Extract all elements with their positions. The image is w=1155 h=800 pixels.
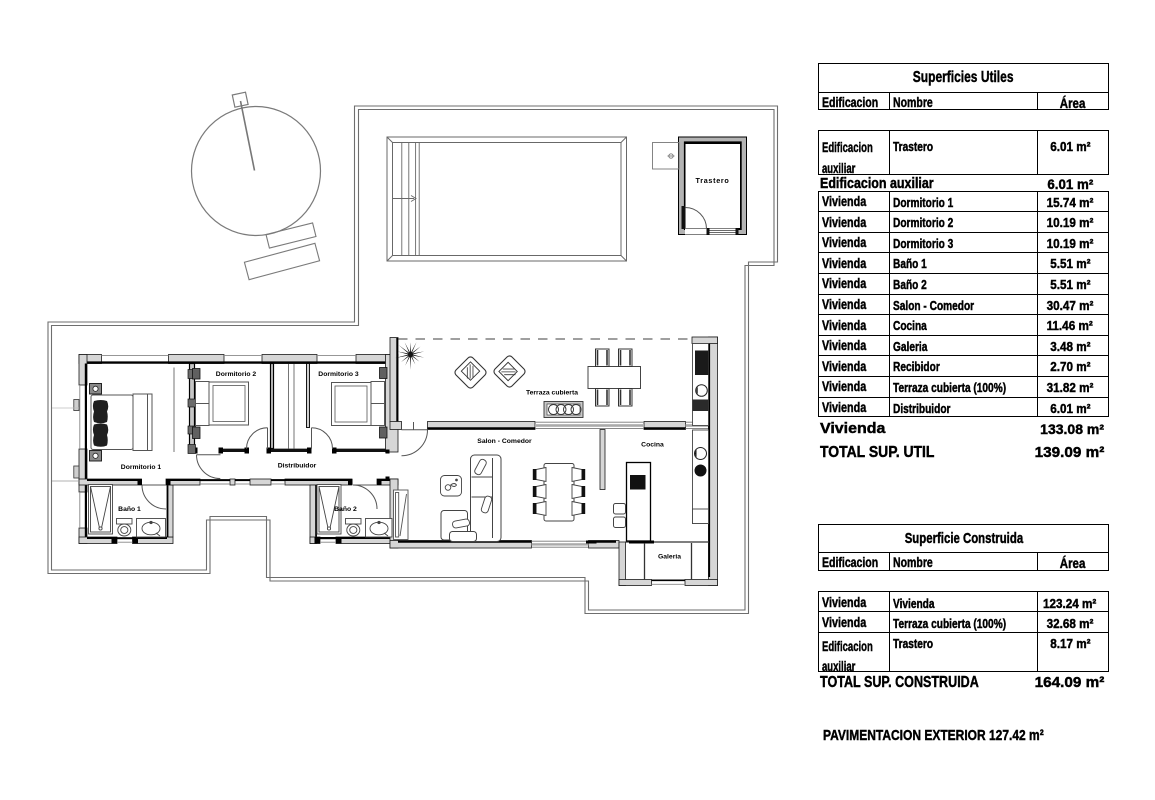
svg-text:Trastero: Trastero	[696, 176, 730, 185]
svg-text:Distribuidor: Distribuidor	[278, 463, 317, 470]
svg-text:Dormitorio 3: Dormitorio 3	[318, 371, 359, 378]
svg-text:Dormitorio 2: Dormitorio 2	[216, 371, 257, 378]
svg-text:Terraza cubierta: Terraza cubierta	[526, 390, 578, 397]
svg-text:Cocina: Cocina	[641, 442, 664, 449]
svg-text:Galeria: Galeria	[658, 554, 681, 561]
svg-text:Baño 1: Baño 1	[118, 506, 141, 513]
svg-text:Salon - Comedor: Salon - Comedor	[477, 438, 532, 445]
svg-text:Dormitorio 1: Dormitorio 1	[121, 464, 162, 471]
svg-text:Baño 2: Baño 2	[334, 506, 357, 513]
